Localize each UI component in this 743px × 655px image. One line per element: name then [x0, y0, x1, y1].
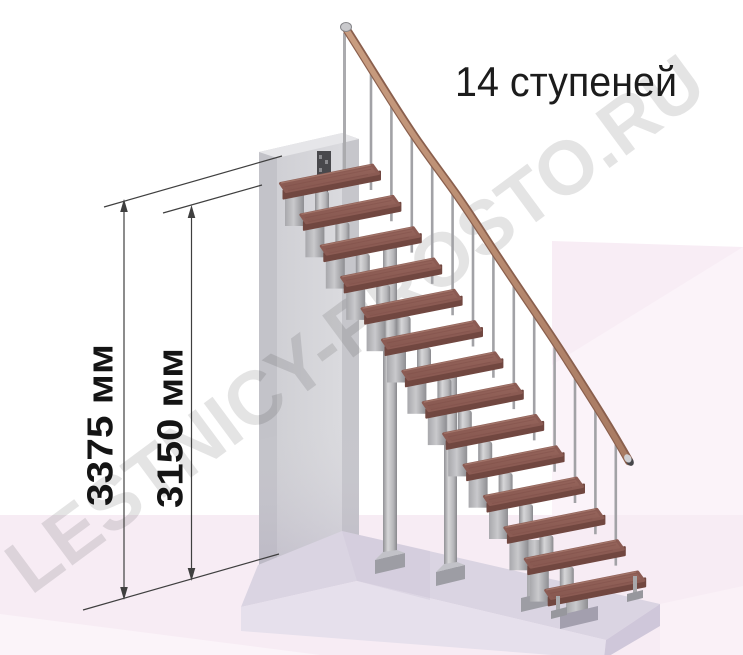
svg-text:3150 мм: 3150 мм: [150, 348, 191, 508]
svg-text:3375 мм: 3375 мм: [80, 344, 121, 506]
svg-text:14 ступеней: 14 ступеней: [455, 58, 677, 105]
